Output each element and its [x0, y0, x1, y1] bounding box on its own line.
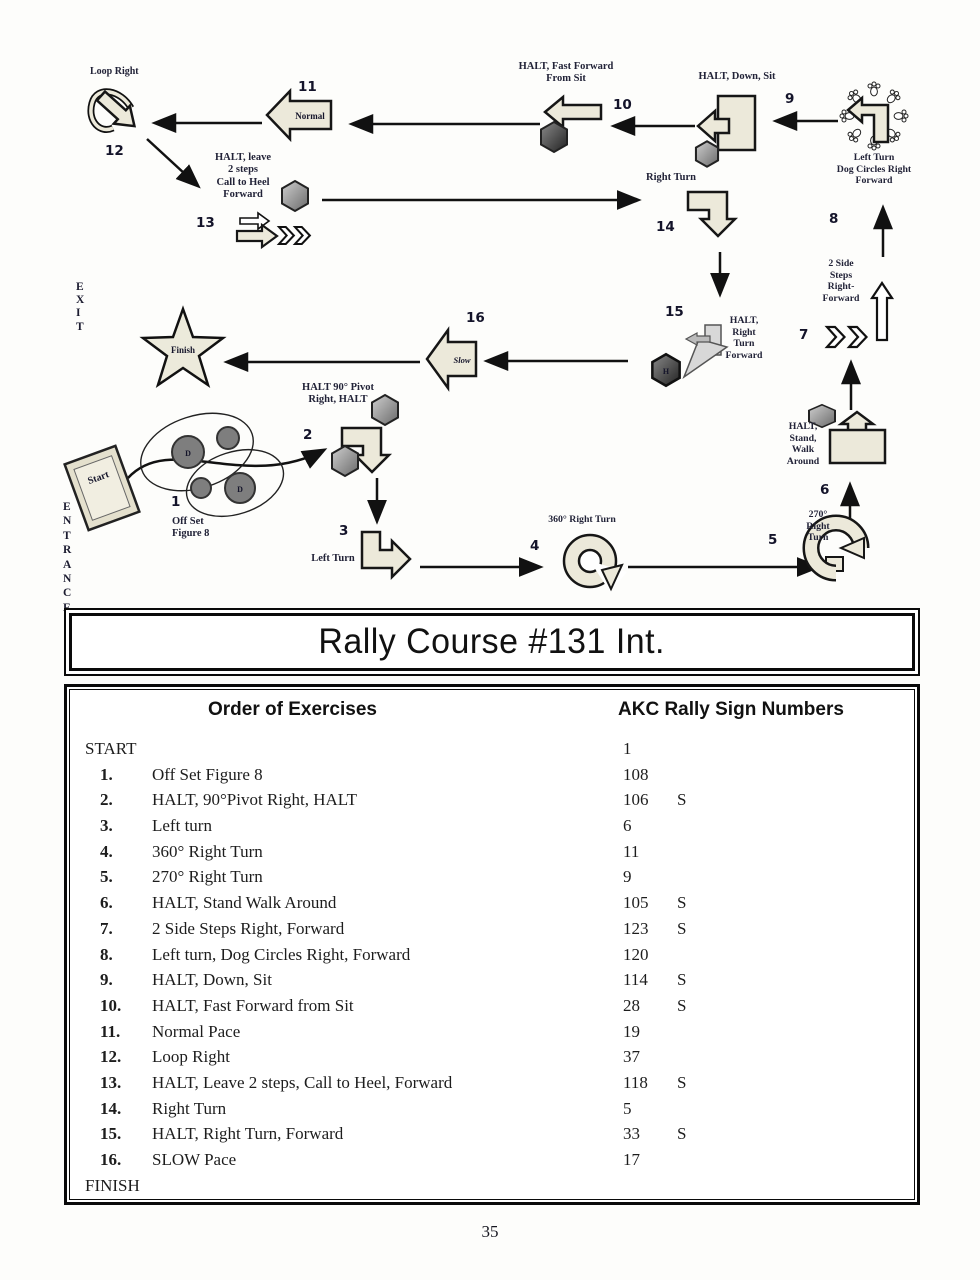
table-row: START1 [70, 739, 914, 765]
stationary-flag: S [677, 919, 686, 939]
row-number: 5. [100, 867, 113, 887]
exercise-name: FINISH [85, 1176, 140, 1196]
station-label-2: HALT 90° Pivot Right, HALT [302, 382, 374, 407]
station-label-5: 270° Right Turn [806, 509, 829, 544]
station-label-14: Right Turn [646, 172, 696, 184]
row-number: 11. [100, 1022, 120, 1042]
stationary-flag: S [677, 970, 686, 990]
sign-number: 108 [623, 765, 649, 785]
table-row: 2.HALT, 90°Pivot Right, HALT106S [70, 790, 914, 816]
row-number: 4. [100, 842, 113, 862]
station-number-7: 7 [799, 327, 808, 343]
table-row: 11.Normal Pace19 [70, 1022, 914, 1048]
station-number-6: 6 [820, 482, 829, 498]
row-number: 14. [100, 1099, 121, 1119]
sign-number: 11 [623, 842, 639, 862]
sign-number: 9 [623, 867, 632, 887]
exercise-name: HALT, 90°Pivot Right, HALT [152, 790, 357, 810]
station-number-10: 10 [613, 97, 632, 113]
sign-left-turn-icon [362, 532, 410, 577]
sign-number: 106 [623, 790, 649, 810]
station-label-15: HALT, Right Turn Forward [725, 315, 762, 361]
station-number-16: 16 [466, 310, 485, 326]
row-number: 13. [100, 1073, 121, 1093]
stationary-flag: S [677, 893, 686, 913]
stationary-flag: S [677, 1124, 686, 1144]
station-number-9: 9 [785, 91, 794, 107]
exercise-name: Normal Pace [152, 1022, 240, 1042]
table-row: 9.HALT, Down, Sit114S [70, 970, 914, 996]
row-number: 10. [100, 996, 121, 1016]
sign-number: 114 [623, 970, 648, 990]
sign-360-right-icon [564, 535, 627, 592]
exercise-name: HALT, Leave 2 steps, Call to Heel, Forwa… [152, 1073, 452, 1093]
station-label-13: HALT, leave 2 steps Call to Heel Forward [215, 152, 271, 202]
bowl-letter: D [237, 485, 243, 494]
row-number: 7. [100, 919, 113, 939]
row-number: 9. [100, 970, 113, 990]
stationary-flag: S [677, 996, 686, 1016]
sign-number: 19 [623, 1022, 640, 1042]
station-label-6: HALT, Stand, Walk Around [787, 421, 820, 467]
sign-pivot-right-icon [332, 395, 398, 476]
station-label-1: Off Set Figure 8 [172, 516, 209, 541]
table-row: 16.SLOW Pace17 [70, 1150, 914, 1176]
row-number: 3. [100, 816, 113, 836]
table-row: FINISH [70, 1176, 914, 1202]
exercise-name: HALT, Down, Sit [152, 970, 272, 990]
sign-loop-right-icon [91, 87, 143, 135]
row-number: 15. [100, 1124, 121, 1144]
station-number-4: 4 [530, 538, 539, 554]
exit-label: EXIT [76, 281, 88, 334]
sign-normal-pace-icon: Normal [267, 91, 331, 139]
sign-right-turn-icon [688, 192, 735, 236]
exercise-name: Off Set Figure 8 [152, 765, 263, 785]
sign-dog-circles-icon [840, 82, 908, 150]
exercise-name: 270° Right Turn [152, 867, 263, 887]
table-row: 8.Left turn, Dog Circles Right, Forward1… [70, 945, 914, 971]
table-row: 13.HALT, Leave 2 steps, Call to Heel, Fo… [70, 1073, 914, 1099]
sign-number: 123 [623, 919, 649, 939]
sign-number: 118 [623, 1073, 648, 1093]
exercise-name: 360° Right Turn [152, 842, 263, 862]
exercise-name: Right Turn [152, 1099, 226, 1119]
exercise-name: HALT, Right Turn, Forward [152, 1124, 343, 1144]
station-number-13: 13 [196, 215, 215, 231]
sign-halt-right-turn-icon: H [652, 325, 727, 386]
exercise-table-inner-border: Order of Exercises AKC Rally Sign Number… [69, 689, 915, 1200]
exercise-name: START [85, 739, 136, 759]
table-row: 4.360° Right Turn11 [70, 842, 914, 868]
table-row: 15.HALT, Right Turn, Forward33S [70, 1124, 914, 1150]
station-label-7: 2 Side Steps Right- Forward [822, 258, 859, 304]
normal-label: Normal [295, 111, 325, 121]
start-sign: Start [65, 446, 140, 530]
table-row: 12.Loop Right37 [70, 1047, 914, 1073]
exercise-rows: START11.Off Set Figure 81082.HALT, 90°Pi… [70, 739, 914, 1201]
station-label-9: HALT, Down, Sit [698, 71, 775, 83]
table-row: 1.Off Set Figure 8108 [70, 765, 914, 791]
row-number: 8. [100, 945, 113, 965]
course-title: Rally Course #131 Int. [319, 622, 666, 662]
station-number-3: 3 [339, 523, 348, 539]
station-number-5: 5 [768, 532, 777, 548]
exercise-table: Order of Exercises AKC Rally Sign Number… [64, 684, 920, 1205]
sign-figure8-icon: D D [131, 400, 292, 528]
station-number-11: 11 [298, 79, 317, 95]
station-label-8: Left Turn Dog Circles Right Forward [837, 152, 911, 187]
station-label-3: Left Turn [311, 553, 354, 565]
station-number-14: 14 [656, 219, 675, 235]
column-header-sign-numbers: AKC Rally Sign Numbers [618, 699, 844, 721]
entrance-label: ENTRANCE [63, 500, 75, 615]
sign-number: 5 [623, 1099, 632, 1119]
course-title-box: Rally Course #131 Int. [64, 608, 920, 676]
exercise-name: Left turn [152, 816, 212, 836]
exercise-name: Loop Right [152, 1047, 230, 1067]
sign-number: 17 [623, 1150, 640, 1170]
row-number: 16. [100, 1150, 121, 1170]
sign-number: 33 [623, 1124, 640, 1144]
station-label-4: 360° Right Turn [548, 514, 616, 526]
course-map: Start D D [0, 0, 980, 604]
row-number: 12. [100, 1047, 121, 1067]
sign-number: 28 [623, 996, 640, 1016]
row-number: 6. [100, 893, 113, 913]
exercise-name: HALT, Stand Walk Around [152, 893, 336, 913]
row-number: 1. [100, 765, 113, 785]
sign-down-sit-icon [696, 96, 755, 167]
finish-star: Finish [143, 309, 223, 385]
station-number-12: 12 [105, 143, 124, 159]
sign-number: 37 [623, 1047, 640, 1067]
station-label-10: HALT, Fast Forward From Sit [519, 61, 614, 86]
table-row: 3.Left turn6 [70, 816, 914, 842]
hex-letter: H [663, 367, 670, 376]
bowl-letter: D [185, 449, 191, 458]
station-number-1: 1 [171, 494, 180, 510]
sign-stand-walk-icon [809, 405, 885, 463]
station-number-15: 15 [665, 304, 684, 320]
exercise-name: HALT, Fast Forward from Sit [152, 996, 354, 1016]
sign-number: 105 [623, 893, 649, 913]
table-row: 5.270° Right Turn9 [70, 867, 914, 893]
finish-label: Finish [171, 345, 195, 355]
station-number-8: 8 [829, 211, 838, 227]
sign-number: 1 [623, 739, 632, 759]
column-header-exercises: Order of Exercises [70, 699, 515, 721]
table-row: 7.2 Side Steps Right, Forward123S [70, 919, 914, 945]
exercise-name: 2 Side Steps Right, Forward [152, 919, 344, 939]
stationary-flag: S [677, 1073, 686, 1093]
course-title-inner-border: Rally Course #131 Int. [69, 613, 915, 671]
row-number: 2. [100, 790, 113, 810]
stationary-flag: S [677, 790, 686, 810]
table-row: 6.HALT, Stand Walk Around105S [70, 893, 914, 919]
sign-slow-pace-icon: Slow [427, 330, 476, 388]
sign-fast-forward-icon [541, 97, 601, 152]
exercise-name: Left turn, Dog Circles Right, Forward [152, 945, 410, 965]
table-row: 10.HALT, Fast Forward from Sit28S [70, 996, 914, 1022]
page-number: 35 [0, 1222, 980, 1242]
sign-number: 120 [623, 945, 649, 965]
station-label-12: Loop Right [90, 66, 139, 78]
table-row: 14.Right Turn5 [70, 1099, 914, 1125]
exercise-name: SLOW Pace [152, 1150, 236, 1170]
slow-label: Slow [453, 355, 470, 365]
sign-number: 6 [623, 816, 632, 836]
station-number-2: 2 [303, 427, 312, 443]
